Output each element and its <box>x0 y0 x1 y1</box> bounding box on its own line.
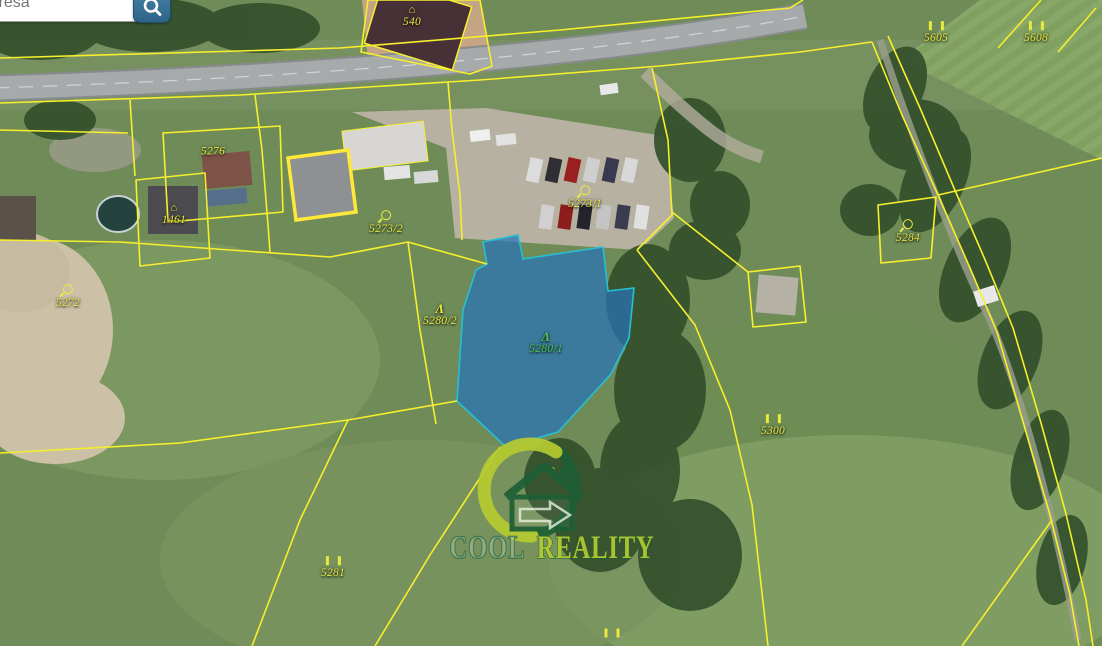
shed-ruin <box>755 274 798 315</box>
left-edge-house <box>0 196 36 240</box>
red-roof-building <box>202 151 253 189</box>
search-input[interactable] <box>0 0 152 22</box>
search-button[interactable] <box>133 0 171 23</box>
garden-pool <box>97 196 139 232</box>
address-search-bar <box>0 0 220 40</box>
search-icon <box>141 0 163 19</box>
map-viewport: 5405276146152725273/25273/15280/25280/15… <box>0 0 1102 646</box>
dark-roof-house <box>148 186 198 234</box>
warehouse-building <box>287 151 354 222</box>
aerial-map[interactable] <box>0 0 1102 646</box>
